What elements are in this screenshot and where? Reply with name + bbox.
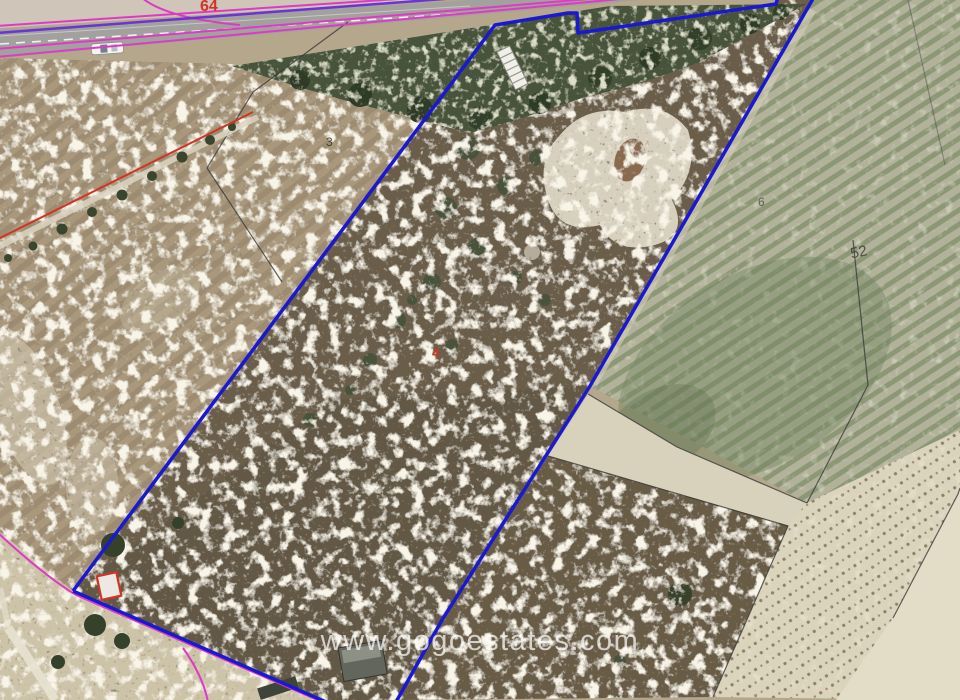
caseta-outline: [97, 572, 122, 600]
plot-marker-4: 4: [432, 345, 440, 360]
parcel-number-3: 3: [326, 135, 333, 149]
aerial-map-view: 3 6 52 64 4 www.gogoestates.com: [0, 0, 960, 700]
watermark-text: www.gogoestates.com: [320, 625, 640, 657]
road-number-64: 64: [200, 0, 218, 15]
satellite-photo: 3 6 52 64 4 www.gogoestates.com: [0, 0, 960, 700]
parcel-number-52: 52: [849, 242, 869, 262]
parcel-number-6: 6: [758, 195, 765, 209]
